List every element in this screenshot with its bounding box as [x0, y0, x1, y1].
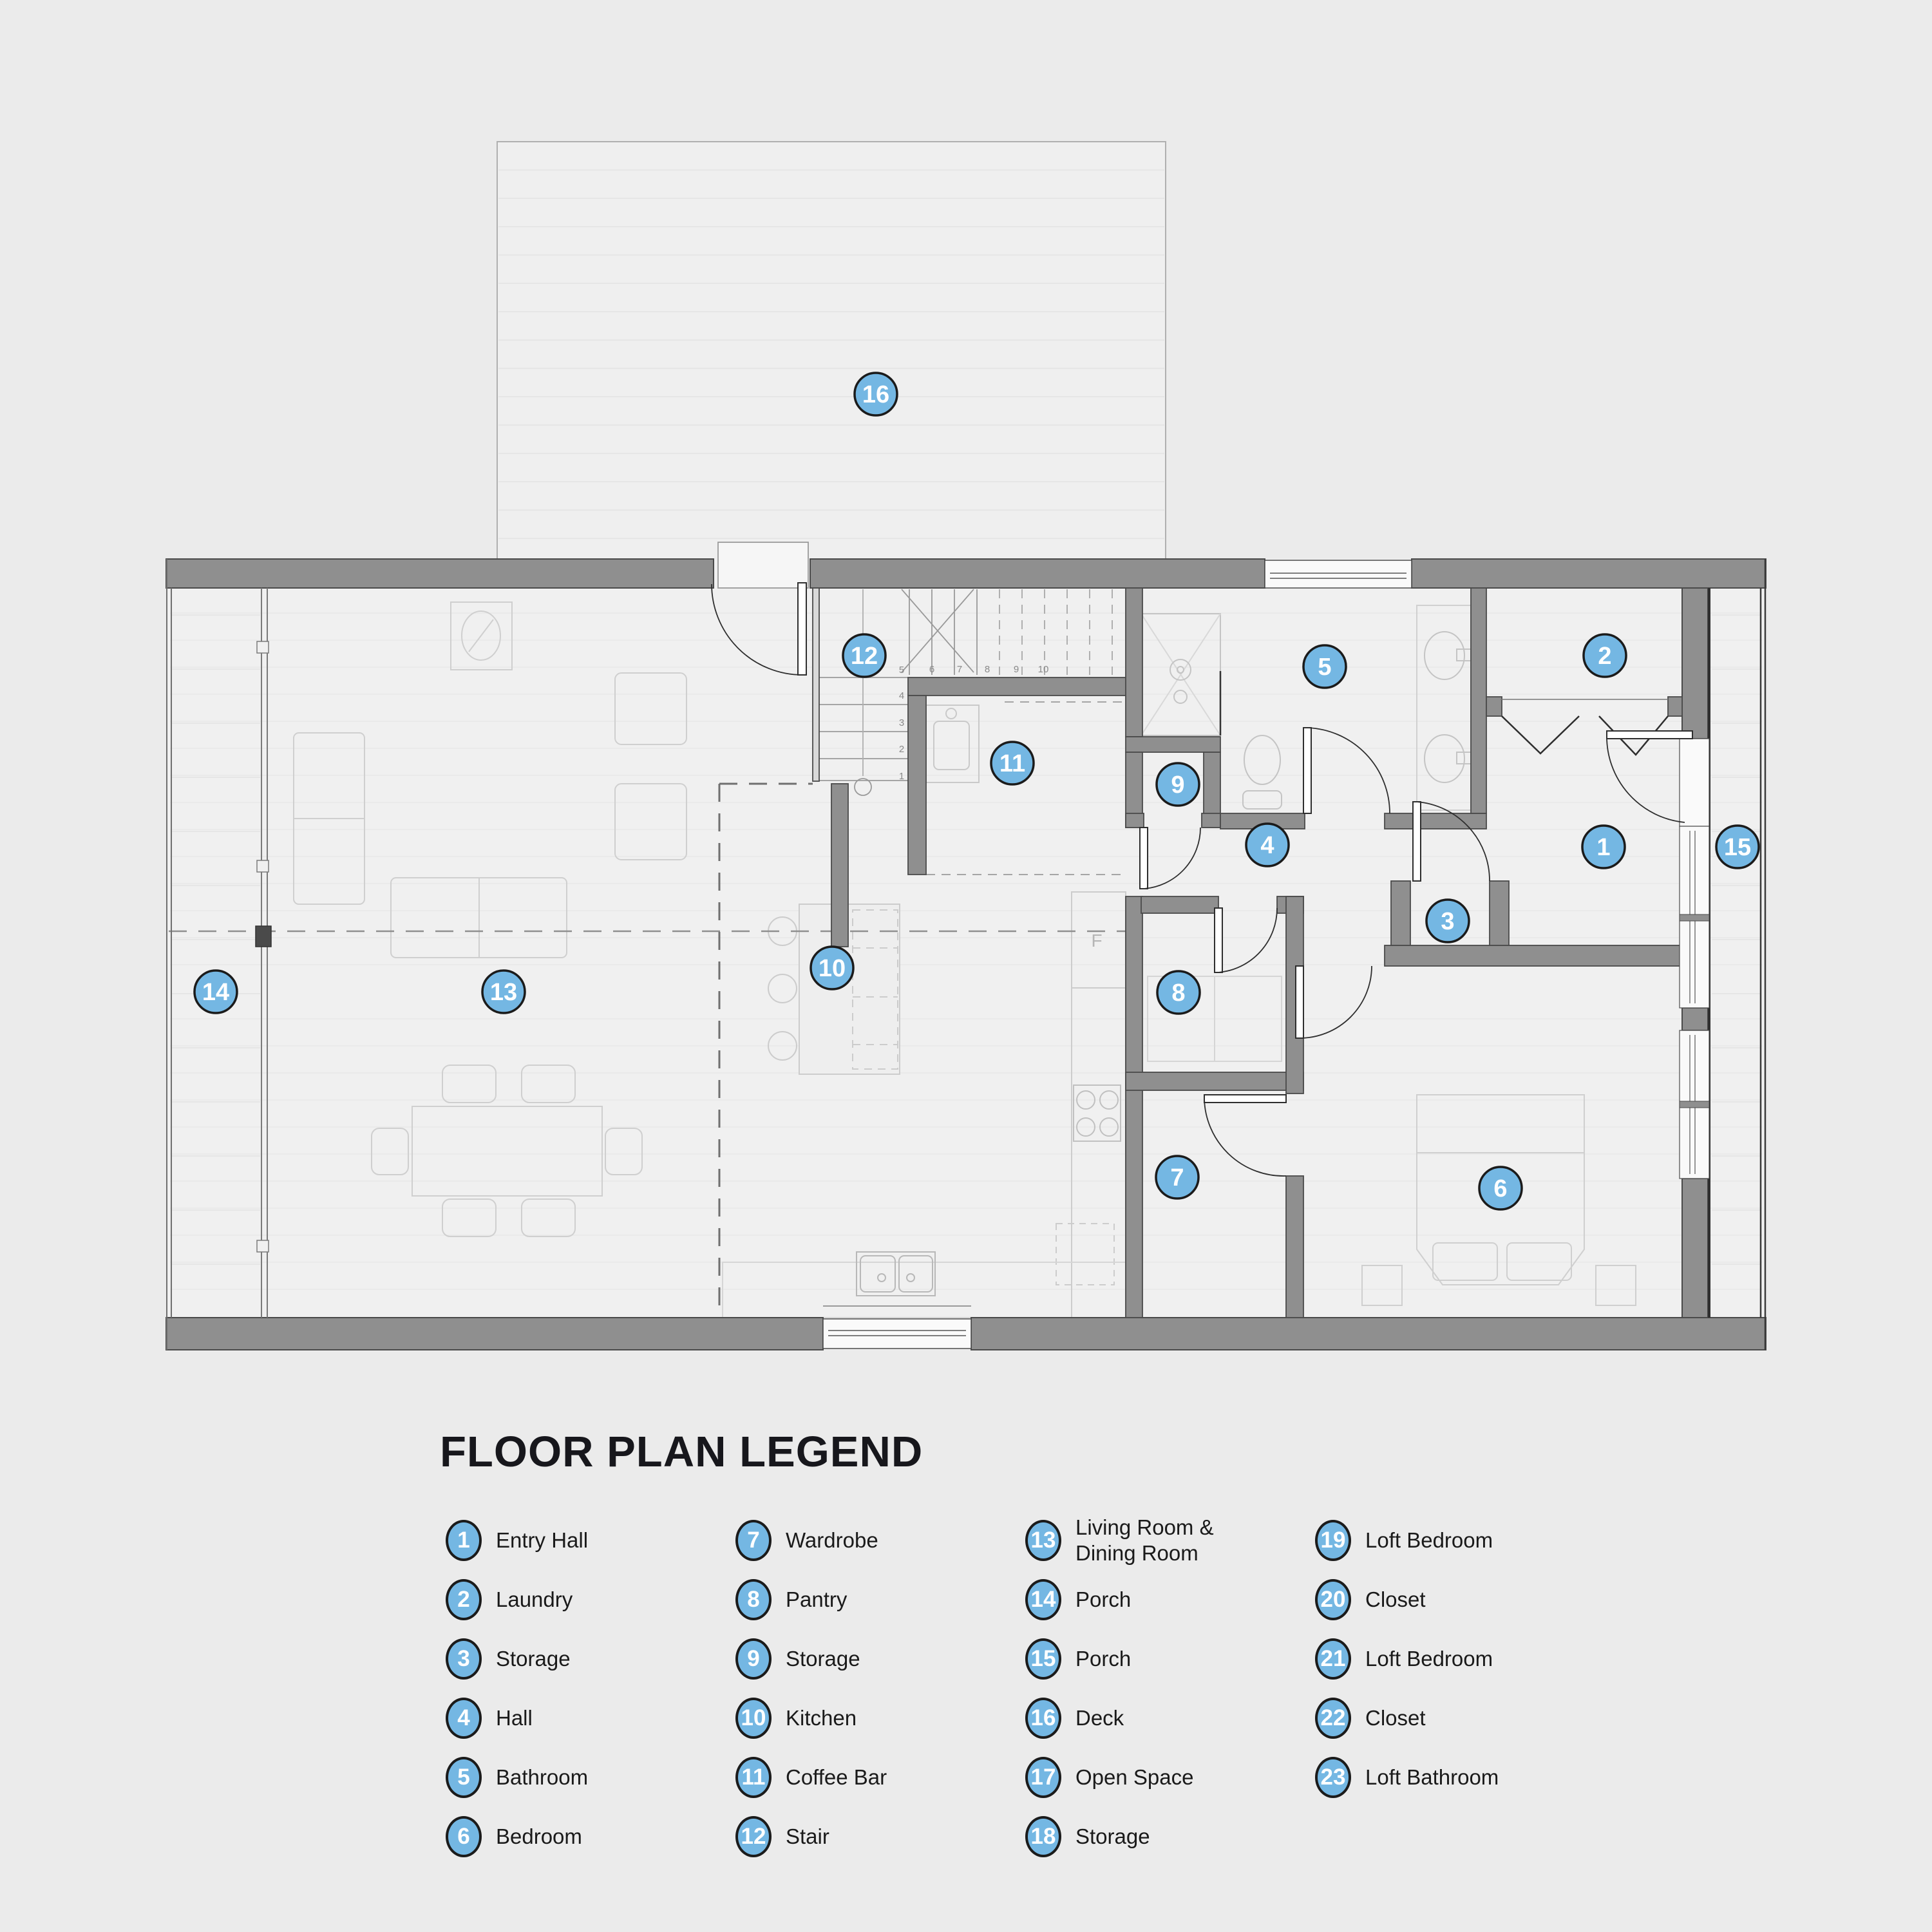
svg-text:5: 5: [899, 665, 904, 676]
plan-marker-10: 10: [811, 947, 853, 989]
bathroom-window: [1265, 560, 1412, 588]
svg-text:5: 5: [1318, 654, 1331, 681]
plan-marker-1: 1: [1582, 826, 1625, 868]
svg-text:15: 15: [1724, 834, 1751, 861]
svg-text:7: 7: [1170, 1164, 1184, 1191]
kitchen-window: [823, 1319, 971, 1349]
svg-text:10: 10: [819, 955, 846, 982]
kitchen-island: [799, 904, 900, 1074]
plan-marker-12: 12: [843, 634, 885, 677]
svg-text:6: 6: [1493, 1175, 1507, 1202]
svg-text:8: 8: [1171, 980, 1185, 1007]
svg-text:3: 3: [1441, 908, 1454, 935]
svg-text:2: 2: [1598, 643, 1611, 670]
plan-marker-5: 5: [1303, 645, 1346, 688]
plan-marker-6: 6: [1479, 1167, 1522, 1209]
plan-marker-14: 14: [194, 971, 237, 1013]
svg-text:12: 12: [851, 643, 878, 670]
deck-area: [497, 142, 1166, 560]
plan-marker-2: 2: [1584, 634, 1626, 677]
plan-marker-16: 16: [855, 373, 897, 415]
svg-text:13: 13: [490, 979, 517, 1006]
floor-plan-page: 12345678910: [0, 0, 1932, 1932]
page-title: FLOOR PLAN LEGEND: [440, 1427, 923, 1477]
svg-text:4: 4: [899, 690, 904, 701]
svg-text:11: 11: [999, 750, 1025, 777]
plan-marker-7: 7: [1156, 1156, 1198, 1198]
svg-text:6: 6: [929, 664, 934, 675]
svg-text:3: 3: [899, 717, 904, 728]
svg-text:7: 7: [957, 664, 962, 675]
svg-text:9: 9: [1171, 772, 1184, 799]
svg-text:1: 1: [899, 771, 904, 782]
svg-text:2: 2: [899, 744, 904, 755]
floor-plan-drawing: 12345678910: [0, 0, 1932, 1932]
deck-door-threshold: [718, 542, 808, 588]
plan-labels: F: [1091, 931, 1102, 951]
svg-text:8: 8: [985, 664, 990, 675]
plan-marker-13: 13: [482, 971, 525, 1013]
svg-text:10: 10: [1038, 664, 1049, 675]
plan-marker-15: 15: [1716, 826, 1759, 868]
plan-marker-4: 4: [1246, 824, 1289, 866]
svg-text:4: 4: [1260, 832, 1274, 859]
plan-text-label: F: [1091, 931, 1102, 951]
svg-text:1: 1: [1596, 834, 1610, 861]
svg-text:9: 9: [1014, 664, 1019, 675]
plan-marker-9: 9: [1157, 763, 1199, 806]
porch-door-opening: [1680, 739, 1709, 826]
svg-text:16: 16: [862, 381, 889, 408]
plan-marker-11: 11: [991, 742, 1034, 784]
svg-text:14: 14: [202, 979, 229, 1006]
plan-marker-3: 3: [1426, 900, 1469, 942]
plan-marker-8: 8: [1157, 971, 1200, 1014]
